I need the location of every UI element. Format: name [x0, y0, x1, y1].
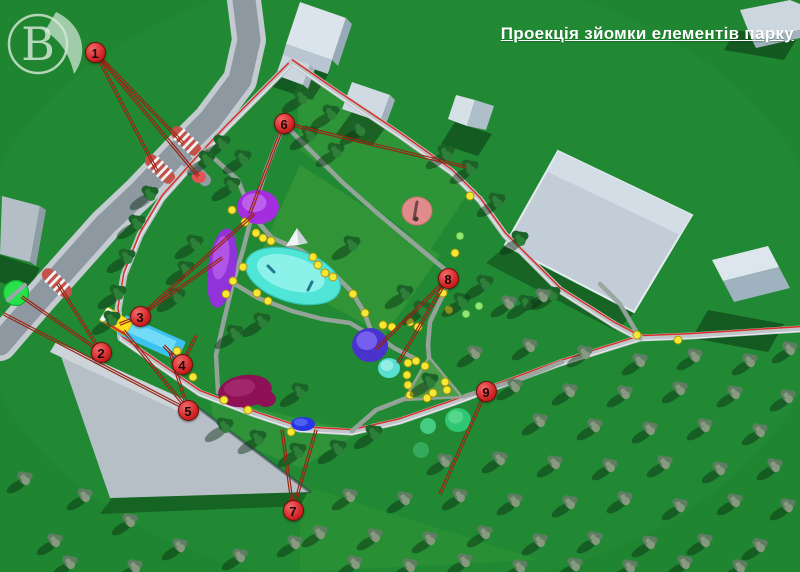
marker-4: 4 [172, 354, 193, 375]
green-lamp-dot [462, 310, 470, 318]
marker-2: 2 [91, 342, 112, 363]
lamp-dot [403, 371, 411, 379]
lamp-dot [421, 362, 429, 370]
lamp-dot [633, 331, 641, 339]
bench-sign [4, 281, 29, 306]
lamp-dot [287, 428, 295, 436]
lamp-dot [466, 192, 474, 200]
lamp-dot [321, 269, 329, 277]
lamp-dot [443, 386, 451, 394]
lamp-dot [222, 290, 230, 298]
green-lamp-dot [456, 232, 464, 240]
logo-letter: B [21, 17, 55, 71]
lamp-dot [404, 359, 412, 367]
lamp-dot [189, 373, 197, 381]
lamp-dot [264, 297, 272, 305]
page-title: Проекція зйомки елементів парку [501, 24, 794, 44]
green-lamp-dot [475, 302, 483, 310]
lamp-dot [252, 229, 260, 237]
lamp-dot [329, 273, 337, 281]
marker-9: 9 [476, 381, 497, 402]
green-glade-1 [445, 408, 471, 432]
lamp-dot [253, 289, 261, 297]
lamp-dot [429, 389, 437, 397]
lamp-dot [404, 381, 412, 389]
lamp-dot [220, 396, 228, 404]
round-pool [378, 358, 400, 378]
flowerbed-magenta-lobe [256, 391, 276, 407]
lamp-dot [451, 249, 459, 257]
lamp-dot [239, 263, 247, 271]
lamp-dot [361, 309, 369, 317]
lamp-dot [349, 290, 357, 298]
lamp-dot [314, 261, 322, 269]
marker-7: 7 [283, 500, 304, 521]
lamp-dot [229, 277, 237, 285]
lamp-dot [309, 253, 317, 261]
stage-blue [291, 417, 315, 431]
lamp-dot [412, 357, 420, 365]
lamp-dot [241, 218, 249, 226]
marker-6: 6 [274, 113, 295, 134]
scene-svg [0, 0, 800, 572]
green-glade-3 [413, 442, 429, 458]
green-glade-2 [420, 418, 436, 434]
lamp-dot [228, 206, 236, 214]
watermark-logo: B [0, 0, 100, 90]
lamp-dot [244, 406, 252, 414]
lamp-dot [388, 323, 396, 331]
dome-blue [352, 328, 388, 362]
lamp-dot [267, 237, 275, 245]
marker-8: 8 [438, 268, 459, 289]
lamp-dot [441, 378, 449, 386]
marker-3: 3 [130, 306, 151, 327]
park-projection-poster: Проекція зйомки елементів парку 12345678… [0, 0, 800, 572]
lamp-dot [379, 321, 387, 329]
sculpture-circle [402, 197, 432, 225]
lamp-dot [674, 336, 682, 344]
lamp-dot [259, 234, 267, 242]
marker-5: 5 [178, 400, 199, 421]
